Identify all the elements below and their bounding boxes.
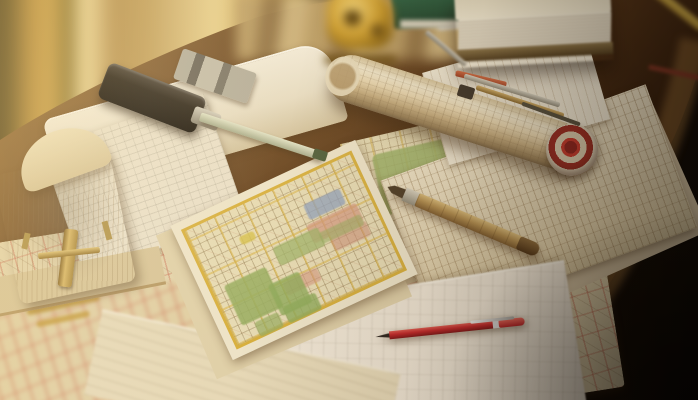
brass-ornament — [316, 0, 410, 66]
desk-photo-scene — [0, 0, 698, 400]
ornament-shadow-detail — [371, 24, 384, 37]
ornament-shadow-detail — [344, 10, 361, 26]
thick-book — [454, 0, 614, 68]
ornament-body — [327, 0, 393, 50]
map-yellow-block — [238, 231, 256, 246]
map-park — [272, 227, 326, 266]
